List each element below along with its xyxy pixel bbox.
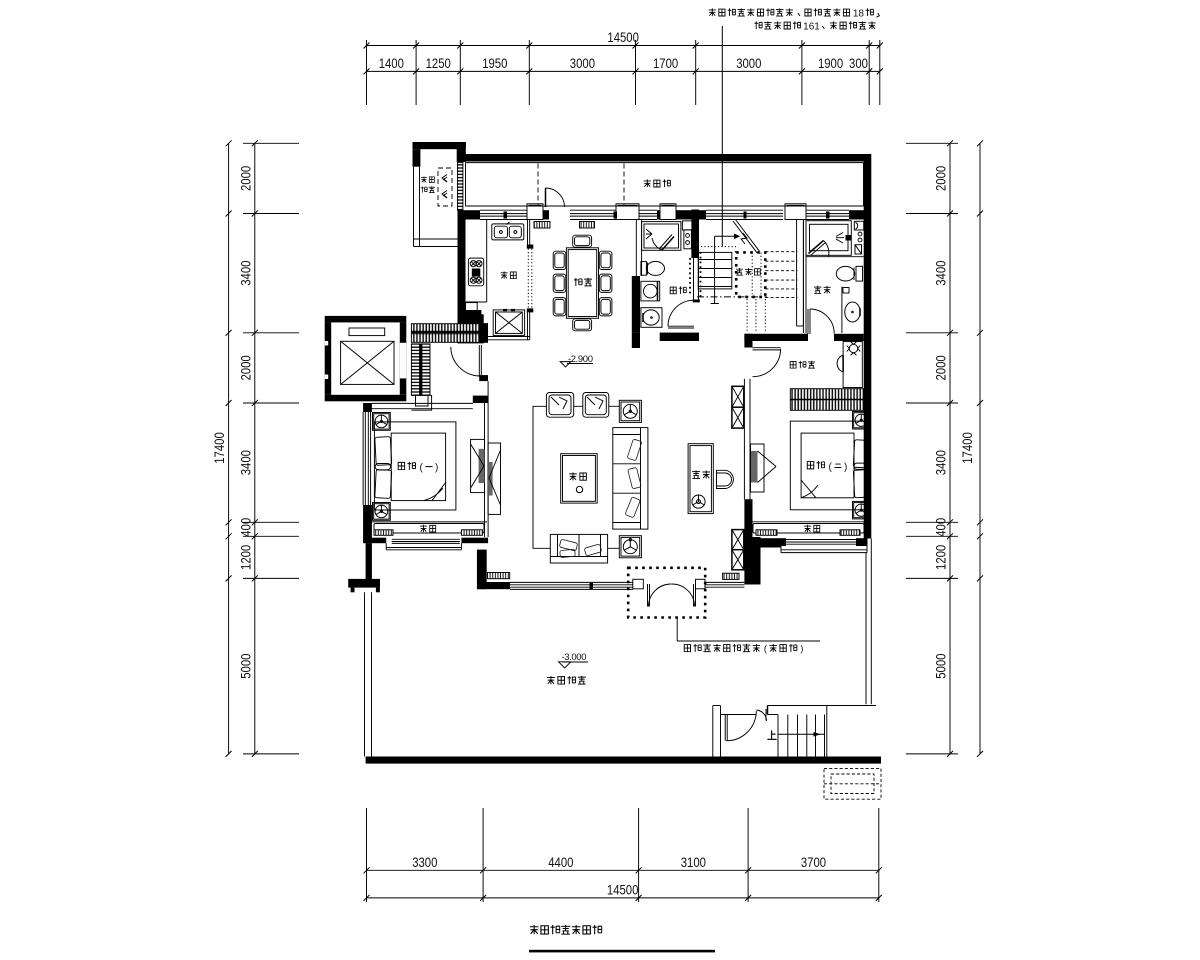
svg-text:1950: 1950 — [482, 56, 507, 71]
svg-text:3400: 3400 — [934, 261, 949, 286]
svg-text:2000: 2000 — [934, 355, 949, 380]
svg-text:1400: 1400 — [379, 56, 404, 71]
svg-text:3100: 3100 — [681, 855, 706, 870]
svg-text:4400: 4400 — [548, 855, 573, 870]
svg-text:161: 161 — [803, 22, 820, 33]
svg-text:400: 400 — [934, 518, 949, 537]
svg-text:3400: 3400 — [239, 450, 254, 475]
svg-text:2000: 2000 — [934, 166, 949, 191]
svg-text:5000: 5000 — [934, 654, 949, 679]
svg-text:300: 300 — [849, 56, 868, 71]
svg-text:1200: 1200 — [239, 545, 254, 570]
svg-text:): ) — [800, 644, 803, 654]
svg-text:18: 18 — [853, 9, 865, 20]
svg-text:14500: 14500 — [607, 30, 639, 45]
svg-text:3000: 3000 — [736, 56, 761, 71]
svg-text:1250: 1250 — [426, 56, 451, 71]
svg-text:1900: 1900 — [818, 56, 843, 71]
svg-text:2000: 2000 — [239, 355, 254, 380]
svg-text:2000: 2000 — [239, 166, 254, 191]
svg-text:400: 400 — [239, 518, 254, 537]
svg-text:(: ( — [764, 644, 767, 654]
svg-text:3000: 3000 — [570, 56, 595, 71]
svg-text:3400: 3400 — [239, 261, 254, 286]
svg-text:3400: 3400 — [934, 450, 949, 475]
svg-text:17400: 17400 — [212, 432, 227, 464]
svg-text:14500: 14500 — [607, 883, 639, 898]
svg-text:1200: 1200 — [934, 545, 949, 570]
svg-text:): ) — [844, 462, 847, 473]
svg-text:3700: 3700 — [801, 855, 826, 870]
svg-text:17400: 17400 — [960, 432, 975, 464]
svg-text:5000: 5000 — [239, 654, 254, 679]
svg-text:): ) — [435, 463, 438, 474]
svg-text:3300: 3300 — [412, 855, 437, 870]
svg-text:1700: 1700 — [653, 56, 678, 71]
